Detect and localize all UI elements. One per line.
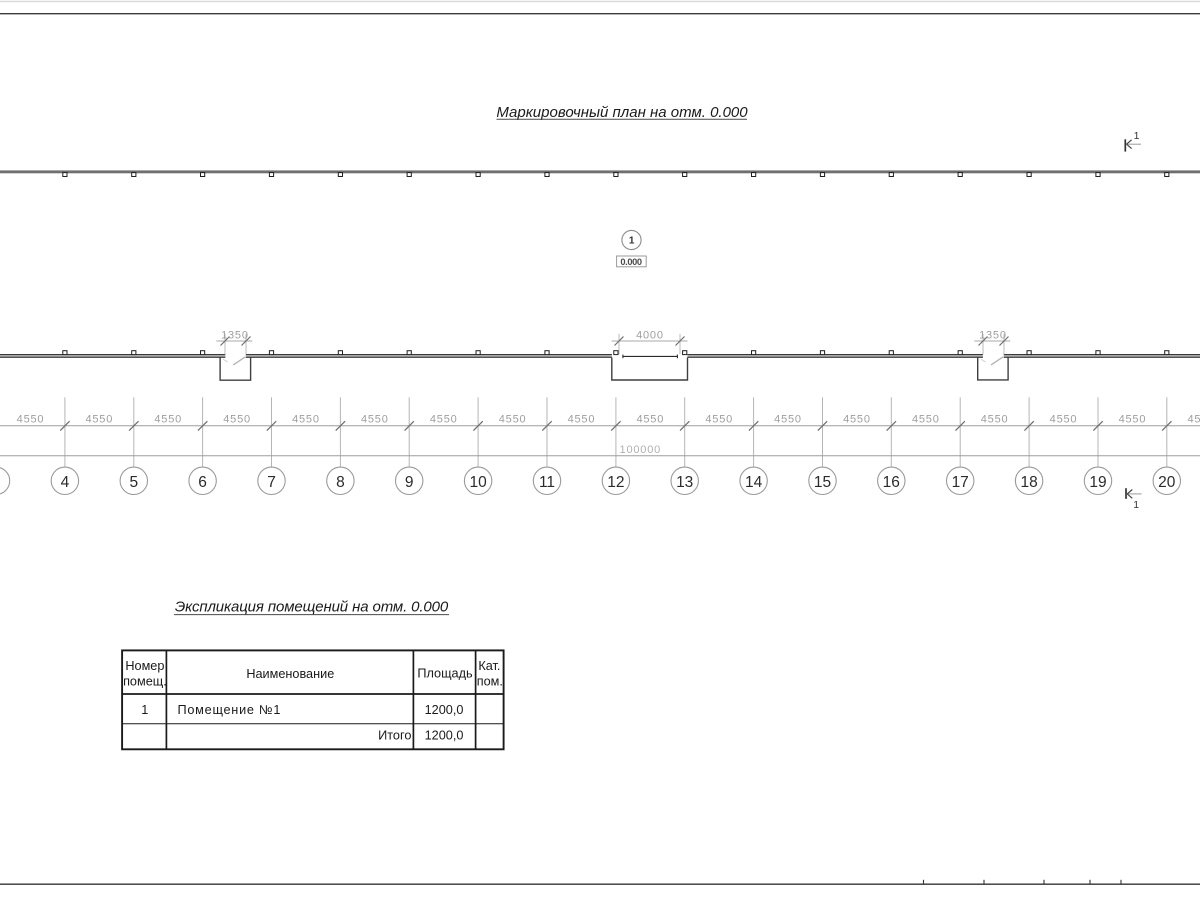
svg-text:Площадь: Площадь: [417, 666, 473, 680]
svg-text:4550: 4550: [292, 414, 320, 426]
svg-text:15: 15: [814, 474, 831, 491]
svg-text:4550: 4550: [361, 414, 389, 426]
svg-text:4550: 4550: [981, 414, 1009, 426]
svg-text:1200,0: 1200,0: [425, 703, 464, 717]
svg-text:11: 11: [539, 474, 555, 491]
svg-text:4550: 4550: [499, 414, 527, 426]
svg-text:4550: 4550: [85, 414, 113, 426]
svg-text:Итого: Итого: [378, 729, 411, 743]
svg-text:4000: 4000: [636, 329, 664, 341]
svg-text:4550: 4550: [636, 414, 664, 426]
svg-text:4: 4: [61, 474, 70, 491]
svg-text:4550: 4550: [705, 414, 733, 426]
svg-text:1: 1: [629, 236, 635, 247]
svg-text:100000: 100000: [620, 444, 662, 456]
svg-text:9: 9: [405, 474, 414, 491]
svg-text:5: 5: [129, 474, 138, 491]
svg-text:13: 13: [676, 474, 693, 491]
svg-text:4550: 4550: [1187, 414, 1200, 426]
svg-text:4550: 4550: [1119, 414, 1147, 426]
svg-text:4550: 4550: [17, 414, 45, 426]
svg-text:Наименование: Наименование: [246, 667, 334, 681]
svg-text:10: 10: [469, 474, 487, 491]
svg-text:4550: 4550: [912, 414, 940, 426]
svg-text:помещ.: помещ.: [123, 674, 167, 688]
svg-text:7: 7: [267, 474, 276, 491]
svg-text:пом.: пом.: [477, 674, 503, 688]
svg-text:14: 14: [745, 474, 763, 491]
svg-text:4550: 4550: [154, 414, 182, 426]
svg-text:6: 6: [198, 474, 207, 491]
svg-text:1350: 1350: [979, 329, 1007, 341]
svg-text:8: 8: [336, 474, 345, 491]
svg-text:Кат.: Кат.: [478, 659, 500, 673]
svg-text:4550: 4550: [774, 414, 802, 426]
svg-text:Номер: Номер: [125, 659, 164, 673]
svg-text:4550: 4550: [223, 414, 251, 426]
svg-text:1350: 1350: [221, 329, 249, 341]
svg-text:Экспликация помещений на отм.: Экспликация помещений на отм. 0.000: [175, 599, 449, 616]
svg-text:20: 20: [1158, 474, 1176, 491]
svg-text:1: 1: [1134, 130, 1140, 142]
svg-text:17: 17: [952, 474, 969, 491]
svg-text:4550: 4550: [430, 414, 458, 426]
svg-text:12: 12: [607, 474, 624, 491]
svg-text:16: 16: [883, 474, 900, 491]
svg-text:4550: 4550: [1050, 414, 1078, 426]
svg-text:18: 18: [1020, 474, 1037, 491]
svg-text:1: 1: [141, 703, 148, 717]
svg-text:Помещение №1: Помещение №1: [178, 703, 282, 717]
svg-text:Маркировочный план на отм. 0.0: Маркировочный план на отм. 0.000: [496, 104, 748, 121]
svg-text:1200,0: 1200,0: [425, 729, 464, 743]
svg-text:0.000: 0.000: [620, 257, 641, 267]
svg-text:4550: 4550: [568, 414, 596, 426]
svg-text:19: 19: [1089, 474, 1106, 491]
svg-text:4550: 4550: [843, 414, 871, 426]
svg-text:1: 1: [1133, 499, 1139, 511]
